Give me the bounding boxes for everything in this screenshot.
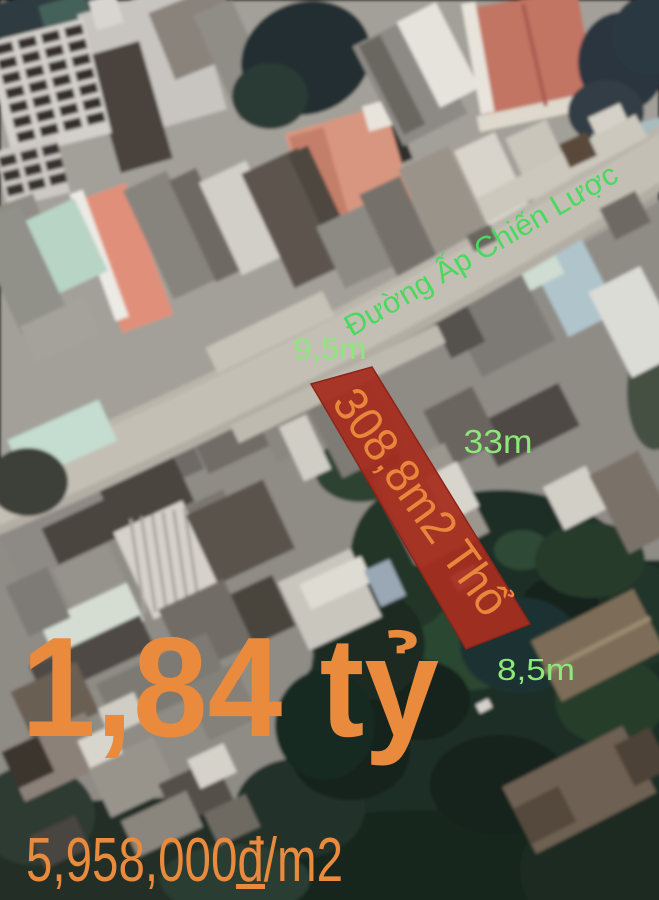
svg-text:33m: 33m (464, 423, 533, 460)
svg-text:1,84 tỷ: 1,84 tỷ (21, 608, 439, 767)
svg-text:8,5m: 8,5m (497, 652, 575, 687)
svg-text:5,958,000đ/m2: 5,958,000đ/m2 (26, 826, 343, 895)
svg-text:9,5m: 9,5m (294, 333, 367, 366)
